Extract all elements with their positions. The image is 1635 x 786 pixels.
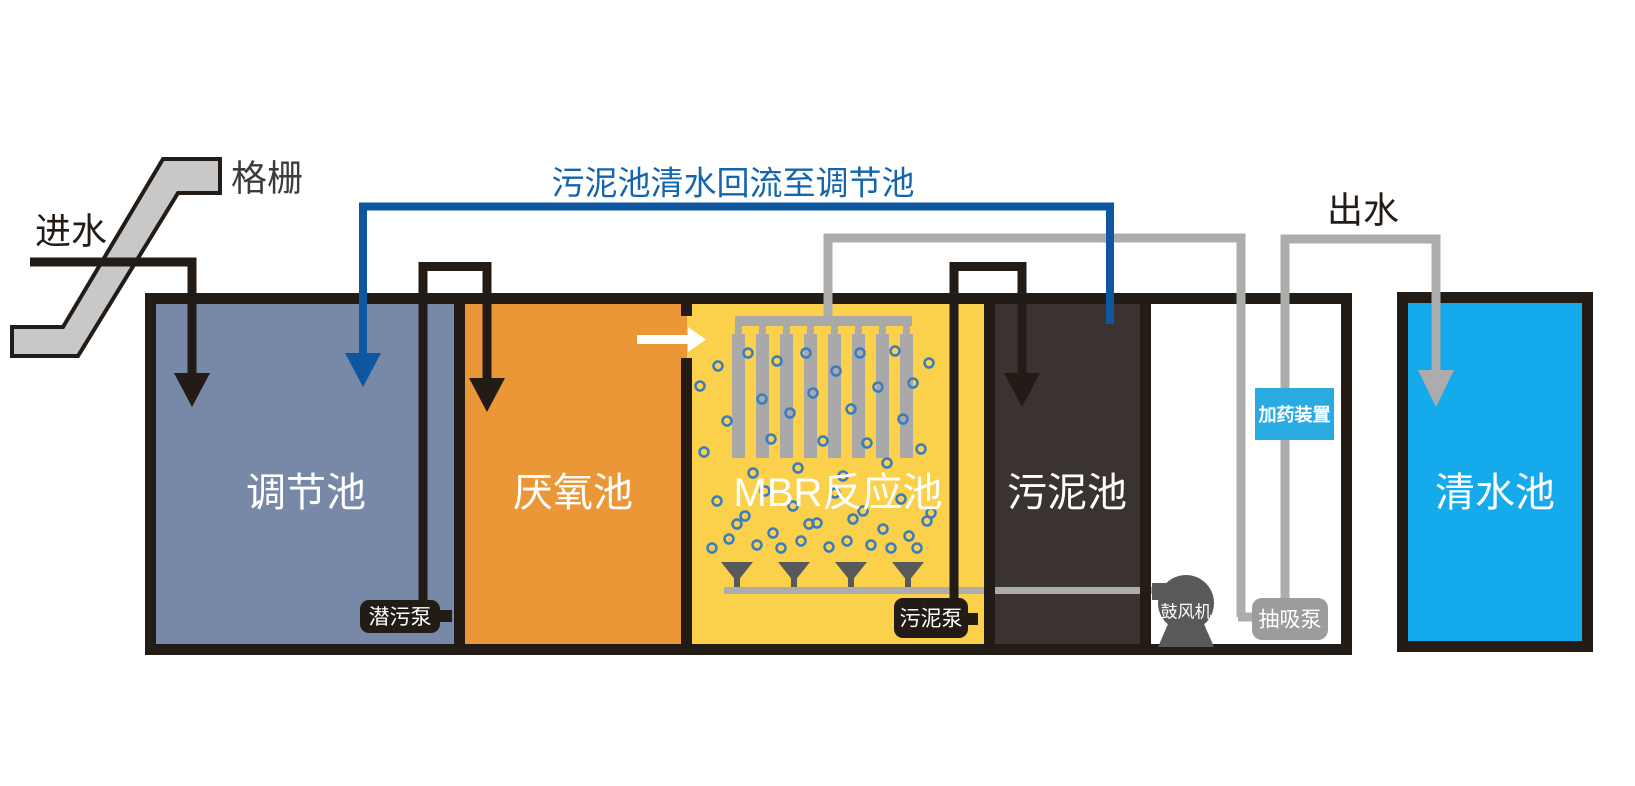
suction-pump: 抽吸泵 [1252, 598, 1328, 640]
membrane-plate-stub [783, 326, 790, 334]
membrane-plate-stub [879, 326, 886, 334]
submersible-pump-tab [438, 610, 452, 622]
membrane-plate [780, 334, 793, 458]
suction-pump-label: 抽吸泵 [1259, 609, 1322, 632]
membrane-plate-stub [759, 326, 766, 334]
influent-label: 进水 [35, 211, 107, 252]
membrane-plate-stub [807, 326, 814, 334]
membrane-plate [876, 334, 889, 458]
membrane-plate [900, 334, 913, 458]
submersible-pump-label: 潜污泵 [369, 606, 432, 629]
tank-label-sludge: 污泥池 [1007, 471, 1127, 515]
tank-label-clean-water: 清水池 [1435, 471, 1555, 515]
bar-screen-label: 格栅 [231, 158, 303, 199]
white-arrow-shaft [637, 335, 689, 344]
membrane-plate-stub [903, 326, 910, 334]
blower-label: 鼓风机 [1161, 603, 1212, 622]
process-flow-diagram: 鼓风机 抽吸泵 加药装置 潜污泵 污泥泵 污泥池清水回流至调节池 进水 格栅 出… [0, 0, 1635, 786]
blower: 鼓风机 [1152, 575, 1214, 647]
effluent-label: 出水 [1327, 190, 1399, 231]
membrane-plate-stub [855, 326, 862, 334]
membrane-header-pipe [735, 316, 912, 326]
tank-label-anaerobic: 厌氧池 [513, 471, 633, 515]
membrane-plate [828, 334, 841, 458]
membrane-plate-stub [735, 326, 742, 334]
dosing-device: 加药装置 [1255, 388, 1334, 440]
dosing-device-label: 加药装置 [1258, 404, 1331, 425]
membrane-plate-stub [831, 326, 838, 334]
tank-label-regulation: 调节池 [246, 471, 366, 515]
sludge-pump-label: 污泥泵 [900, 608, 963, 631]
tank-label-mbr: MBR反应池 [734, 471, 943, 515]
return-line-title: 污泥池清水回流至调节池 [552, 165, 915, 202]
submersible-pump: 潜污泵 [360, 600, 452, 633]
sludge-pump: 污泥泵 [894, 598, 978, 638]
